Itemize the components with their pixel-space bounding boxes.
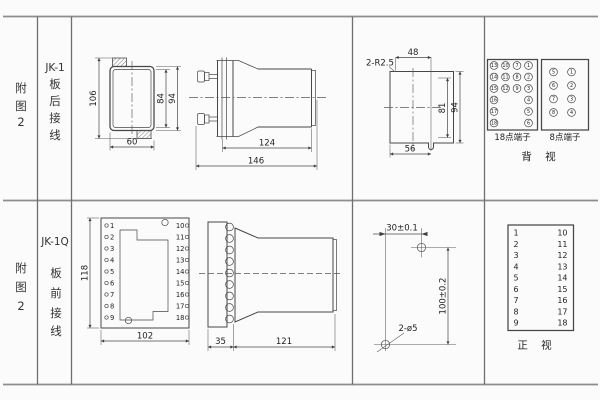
terminal-pin-number: 12 [176, 245, 185, 253]
wiring-char: 后 [49, 94, 61, 108]
terminal-number: 8 [515, 75, 518, 81]
terminal-pin-number: 10 [176, 222, 185, 230]
dim-100: 100±0.2 [439, 278, 449, 315]
table-right-number: 13 [557, 262, 567, 271]
terminal-number: 10 [502, 63, 508, 69]
wiring-char: 线 [50, 324, 62, 338]
table-left-number: 4 [514, 262, 519, 271]
dim-124: 124 [259, 139, 275, 149]
dim-121: 121 [276, 337, 292, 347]
drawing-sheet: 附 图 2 JK-1 板 后 接 线 106 84 [0, 0, 600, 400]
wiring-char: 线 [49, 128, 61, 142]
front-view-label: 正 视 [517, 339, 556, 352]
hole-diameter-label: 2-ø5 [398, 324, 417, 334]
relay-dimension-drawing: 附 图 2 JK-1 板 后 接 线 106 84 [0, 0, 600, 400]
dim-94-cutout: 94 [451, 102, 461, 113]
terminal-number: 1 [570, 70, 573, 76]
wiring-char: 板 [49, 77, 61, 91]
table-left-number: 1 [514, 229, 519, 238]
terminal-number: 15 [491, 86, 497, 92]
terminal-pin-number: 13 [176, 256, 185, 264]
table-left-number: 3 [514, 251, 519, 260]
terminal-number: 6 [552, 83, 555, 89]
terminal-number: 14 [491, 75, 497, 81]
terminal-number: 5 [552, 70, 555, 76]
terminal-number: 7 [515, 63, 518, 69]
dim-146: 146 [248, 157, 264, 167]
terminal-number: 11 [502, 75, 508, 81]
terminal-number: 4 [570, 110, 573, 116]
terminal-number: 18 [491, 121, 497, 127]
terminal-number: 12 [502, 86, 508, 92]
wiring-char: 接 [50, 306, 62, 320]
terminal-pin-number: 6 [110, 279, 114, 287]
terminal-number: 4 [527, 98, 530, 104]
model-name: JK-1Q [40, 236, 69, 248]
mounting-tab-bottom [137, 131, 151, 139]
terminal-number: 7 [552, 97, 555, 103]
dim-48: 48 [408, 48, 419, 58]
terminal-number: 3 [570, 97, 573, 103]
terminal-pin-number: 1 [110, 222, 114, 230]
terminal-pin-number: 7 [110, 291, 114, 299]
table-right-number: 10 [557, 229, 567, 238]
table-right-number: 14 [557, 274, 567, 283]
figure-char: 附 [15, 261, 27, 275]
terminal-pin-number: 5 [110, 268, 114, 276]
dim-106: 106 [89, 90, 99, 106]
terminal-pin-number: 17 [176, 302, 185, 310]
wiring-char: 接 [49, 111, 61, 125]
terminal-18-label: 18点端子 [494, 132, 531, 143]
dim-81: 81 [438, 103, 448, 114]
terminal-pin-number: 3 [110, 245, 114, 253]
dim-30: 30±0.1 [386, 224, 417, 234]
terminal-number: 13 [491, 63, 497, 69]
figure-char: 2 [17, 115, 24, 129]
dim-102: 102 [137, 332, 153, 342]
terminal-pin-number: 16 [176, 291, 185, 299]
terminal-number: 16 [491, 98, 497, 104]
table-right-number: 11 [557, 240, 567, 249]
figure-char: 图 [15, 99, 27, 113]
table-left-number: 6 [514, 285, 519, 294]
table-left-number: 8 [514, 307, 519, 316]
terminal-pin-number: 8 [110, 302, 114, 310]
terminal-pin-number: 2 [110, 233, 114, 241]
dim-84: 84 [157, 93, 167, 104]
table-right-number: 12 [557, 251, 567, 260]
table-left-number: 9 [514, 319, 519, 328]
figure-char: 附 [15, 81, 27, 95]
wiring-char: 前 [50, 286, 62, 300]
dim-94: 94 [168, 93, 178, 104]
terminal-pin-number: 15 [176, 279, 185, 287]
terminal-number: 3 [527, 86, 530, 92]
table-left-number: 5 [514, 274, 519, 283]
terminal-number: 17 [491, 109, 497, 115]
terminal-number: 9 [515, 86, 518, 92]
terminal-pin-number: 11 [176, 233, 185, 241]
dim-56: 56 [405, 145, 416, 155]
terminal-pin-number: 18 [176, 314, 185, 322]
terminal-number: 2 [570, 83, 573, 89]
dim-60: 60 [127, 138, 138, 148]
table-right-number: 15 [557, 285, 567, 294]
terminal-number: 6 [527, 121, 530, 127]
terminal-pin-number: 9 [110, 314, 114, 322]
terminal-pin-number: 14 [176, 268, 185, 276]
back-view-label: 背 视 [521, 150, 560, 163]
table-left-number: 7 [514, 296, 519, 305]
mounting-tab-top [113, 58, 127, 67]
figure-char: 图 [15, 280, 27, 294]
table-right-number: 18 [557, 319, 567, 328]
terminal-number: 2 [527, 75, 530, 81]
terminal-number: 5 [527, 109, 530, 115]
table-right-number: 16 [557, 296, 567, 305]
terminal-8-label: 8点端子 [550, 132, 581, 143]
table-left-number: 2 [514, 240, 519, 249]
model-name: JK-1 [44, 62, 64, 74]
table-right-number: 17 [557, 307, 567, 316]
dim-35: 35 [215, 337, 226, 347]
terminal-number: 8 [552, 110, 555, 116]
wiring-char: 板 [50, 266, 62, 280]
figure-char: 2 [17, 299, 24, 313]
terminal-pin-number: 4 [110, 256, 114, 264]
terminal-number: 1 [527, 63, 530, 69]
dim-118: 118 [81, 265, 91, 281]
